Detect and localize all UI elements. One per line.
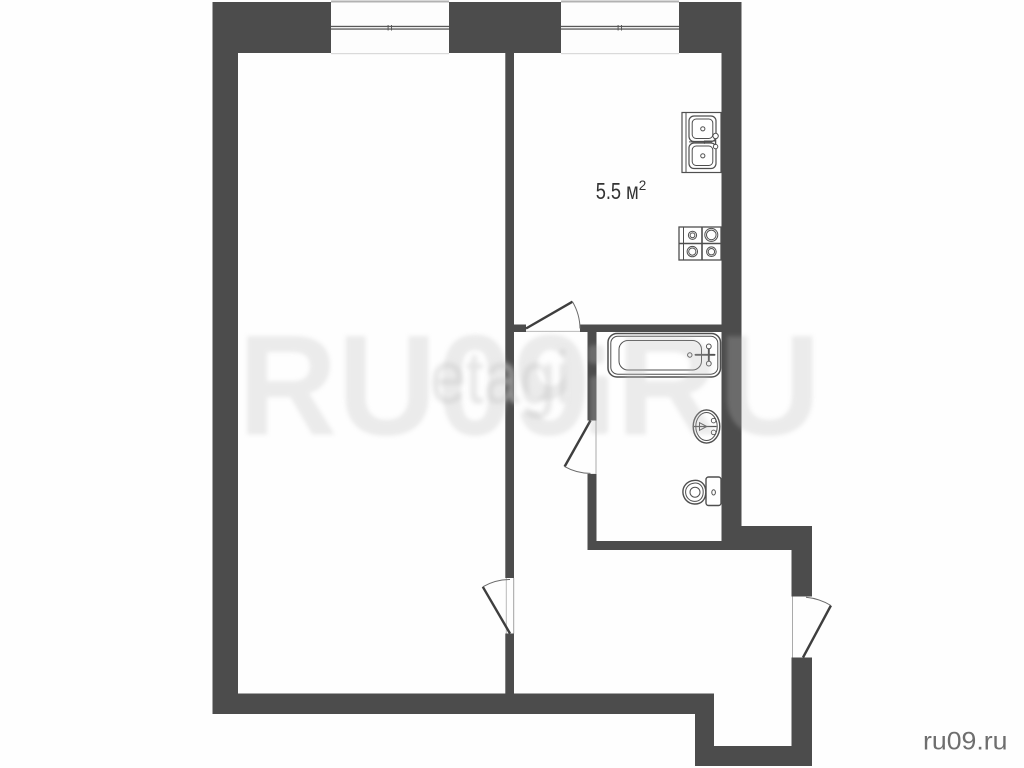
svg-text:ru09.ru: ru09.ru <box>923 728 1008 756</box>
svg-text:2: 2 <box>639 178 647 193</box>
svg-text:RU: RU <box>616 307 821 466</box>
svg-text:5.5 м: 5.5 м <box>596 178 639 204</box>
svg-text:RU09: RU09 <box>238 307 590 466</box>
